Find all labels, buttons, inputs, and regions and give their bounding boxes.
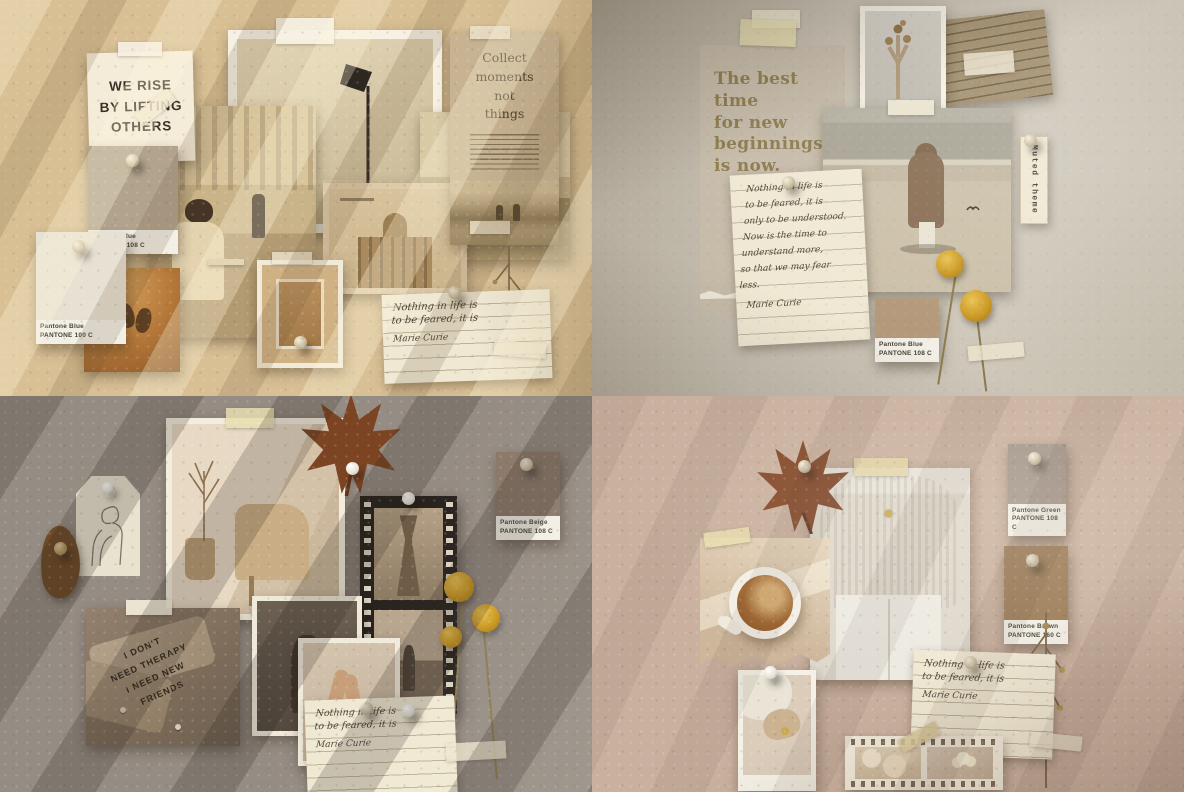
push-pin	[346, 462, 359, 475]
handwritten-note: Nothing in life is to be feared, it is M…	[381, 289, 552, 384]
jeans-seam	[888, 599, 890, 680]
note-signature: Marie Curie	[922, 690, 1046, 704]
shoe-shape	[133, 306, 153, 334]
board-dark-taupe: Pantone Beige PANTONE 108 C I DON'T NEED…	[0, 396, 592, 792]
push-pin	[520, 458, 533, 471]
push-pin	[964, 656, 977, 669]
push-pin	[764, 666, 777, 679]
dome-shape	[383, 213, 407, 239]
muted-theme-tag: Muted theme	[1020, 136, 1048, 224]
swatch-name: Pantone Beige	[500, 519, 556, 528]
swatch-code: PANTONE 108 C	[1012, 515, 1062, 533]
push-pin	[102, 482, 113, 493]
person-silhouette	[403, 645, 415, 691]
maple-leaf	[748, 438, 858, 534]
note-signature: Marie Curie	[315, 736, 446, 751]
push-pin	[798, 460, 811, 473]
push-pin	[54, 542, 67, 555]
swatch-label: Pantone Green PANTONE 108 C	[1008, 504, 1066, 536]
board-warm-beige: Collect moments not things WE RISE BY LI…	[0, 0, 592, 396]
swatch-name: Pantone Green	[1012, 507, 1062, 516]
person-silhouette	[496, 205, 503, 220]
person-silhouette	[513, 204, 520, 221]
push-pin	[294, 336, 307, 349]
trench-coat-shape	[908, 152, 944, 228]
push-pin	[126, 154, 139, 167]
postcard-image	[329, 189, 461, 288]
swatch-label: Pantone Beige PANTONE 108 C	[496, 516, 560, 540]
collect-moments-card: Collect moments not things	[450, 33, 559, 245]
dress-silhouette	[395, 515, 423, 596]
hand-with-flowers-icon	[865, 11, 931, 99]
craspedia-bloom	[472, 604, 500, 632]
tape	[740, 19, 797, 47]
postcard-caption	[340, 198, 374, 201]
swatch-name: Pantone Blue	[40, 323, 122, 332]
board-grey-concrete: The best time for new beginnings is now.	[592, 0, 1184, 396]
vase-shape	[185, 538, 215, 580]
film-strip-horizontal	[845, 736, 1003, 790]
tag-label: Muted theme	[1030, 145, 1039, 214]
tape	[226, 408, 274, 428]
bird-icon	[966, 204, 980, 212]
craspedia-bloom	[936, 250, 964, 278]
quote-text: The best time for new beginnings is now.	[714, 69, 837, 178]
push-pin	[782, 176, 795, 189]
coffee-surface	[737, 575, 793, 631]
craspedia-bloom	[960, 290, 992, 322]
building-postcard	[323, 183, 467, 294]
cafe-table-shape	[208, 259, 244, 265]
film-perforations	[851, 781, 997, 787]
tape	[888, 100, 934, 115]
collect-card-title: Collect moments not things	[458, 49, 551, 124]
board-blush-tan: Pantone Green PANTONE 108 C Pantone Brow…	[592, 396, 1184, 792]
button-shape	[175, 724, 181, 730]
push-pin	[402, 704, 415, 717]
maple-leaf	[292, 396, 410, 496]
tape	[470, 221, 510, 234]
push-pin	[448, 286, 461, 299]
armchair-shape	[235, 504, 308, 580]
push-pin	[72, 240, 85, 253]
craspedia-flowers	[922, 238, 1032, 388]
hat-portrait-polaroid	[738, 670, 816, 791]
swatch-label: Pantone Blue PANTONE 100 C	[36, 320, 126, 344]
flower-stem	[937, 266, 958, 385]
craspedia-bloom	[440, 626, 462, 648]
swatch-code: PANTONE 108 C	[500, 528, 556, 537]
film-frame-shells	[855, 747, 921, 779]
polaroid-image	[743, 675, 811, 775]
moodboard-collage: Collect moments not things WE RISE BY LI…	[0, 0, 1184, 792]
hill-photo	[450, 181, 559, 245]
coffee-cup-shape	[729, 567, 801, 639]
push-pin	[1026, 554, 1039, 567]
note-signature: Marie Curie	[746, 295, 859, 311]
tape	[446, 740, 507, 761]
woman-silhouette	[185, 199, 213, 223]
tape	[470, 26, 510, 39]
note-text: Nothing in life is to be feared, it is	[391, 296, 541, 327]
push-pin	[1024, 134, 1037, 147]
tape	[276, 18, 334, 44]
note-text: Nothing in life is to be feared, it is	[921, 657, 1047, 687]
push-pin	[402, 492, 415, 505]
poster-text: WE RISE BY LIFTING OTHERS	[99, 75, 183, 140]
craspedia-bloom	[444, 572, 474, 602]
handwritten-note: Nothing in life is to be feared, it is M…	[304, 695, 457, 792]
window-corner-photo	[257, 260, 343, 368]
tape	[118, 42, 162, 56]
handwritten-note: Nothing in life is to be feared, it is o…	[730, 169, 871, 347]
tape	[854, 458, 908, 476]
push-pin	[360, 702, 373, 715]
push-pin	[1028, 452, 1041, 465]
colonnade-shape	[358, 237, 432, 288]
tape	[272, 252, 312, 264]
film-frame-bouquet	[927, 747, 993, 779]
pedestrian-silhouette	[252, 194, 265, 238]
tape	[126, 600, 172, 615]
embroidered-shirt-photo: I DON'T NEED THERAPY I NEED NEW FRIENDS	[86, 608, 240, 746]
coffee-cup-photo	[700, 538, 830, 670]
note-text: Nothing in life is to be feared, it is o…	[739, 176, 859, 294]
fine-print-lines	[470, 134, 539, 170]
dried-plant-icon	[179, 451, 229, 541]
tape	[963, 50, 1014, 75]
line-art-woman-icon	[84, 502, 132, 568]
note-text: Nothing in life is to be feared, it is	[314, 703, 446, 734]
swatch-code: PANTONE 100 C	[40, 332, 122, 341]
